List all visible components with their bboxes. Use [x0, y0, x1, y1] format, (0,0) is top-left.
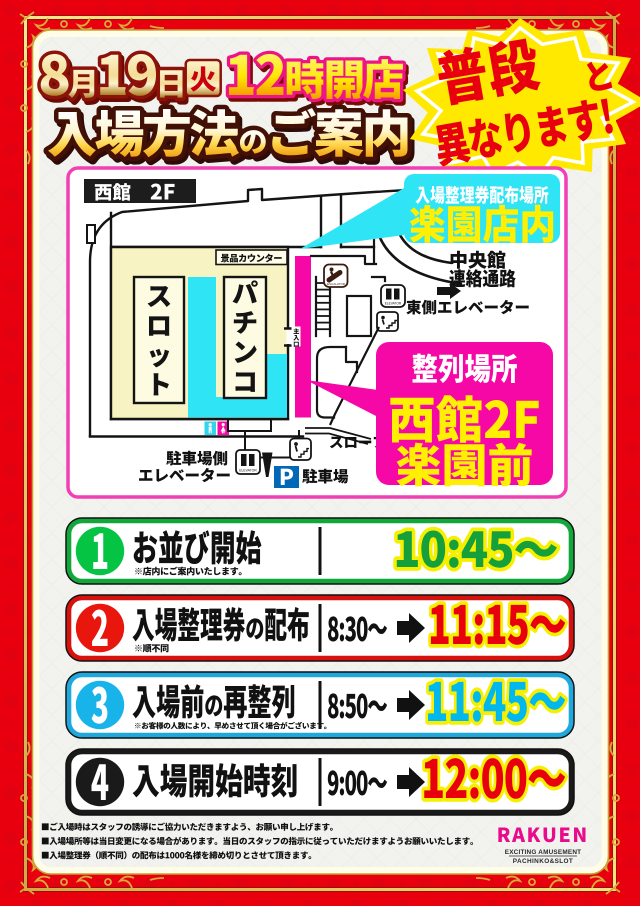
svg-text:PACHINKO&SLOT: PACHINKO&SLOT: [513, 858, 573, 865]
svg-text:ELEVATOR: ELEVATOR: [239, 469, 257, 473]
svg-text:EXCITING AMUSEMENT: EXCITING AMUSEMENT: [505, 849, 582, 856]
svg-text:ELEVATOR: ELEVATOR: [385, 302, 402, 306]
svg-text:ESCALATOR: ESCALATOR: [327, 282, 346, 286]
